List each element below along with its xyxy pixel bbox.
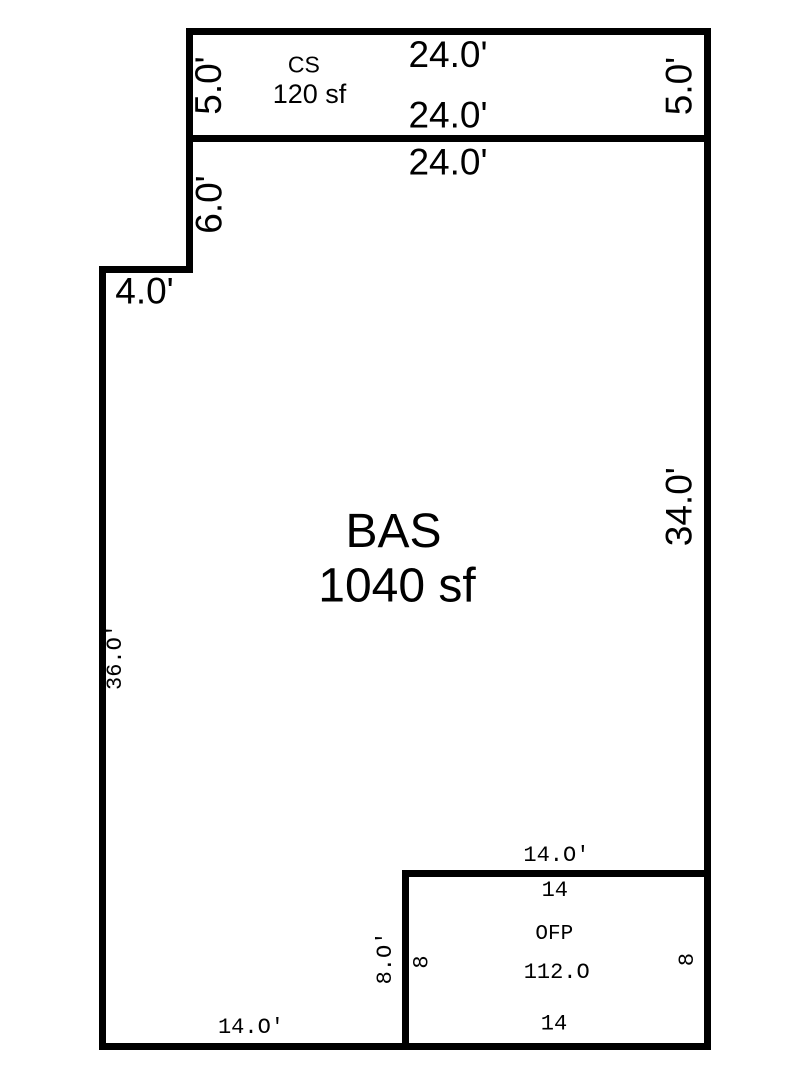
svg-text:14: 14 [541, 1012, 567, 1037]
svg-text:36.O': 36.O' [103, 624, 128, 690]
svg-text:1040 sf: 1040 sf [318, 560, 476, 613]
svg-text:24.0': 24.0' [408, 142, 487, 183]
svg-text:5.0': 5.0' [188, 56, 229, 115]
svg-text:24.0': 24.0' [408, 95, 487, 136]
svg-text:14: 14 [542, 878, 568, 903]
svg-text:14.O': 14.O' [218, 1015, 284, 1040]
svg-text:8: 8 [675, 953, 700, 966]
svg-text:34.0': 34.0' [659, 467, 700, 546]
svg-text:6.0': 6.0' [189, 175, 230, 234]
svg-text:24.0': 24.0' [408, 34, 487, 75]
svg-text:112.O: 112.O [524, 960, 590, 985]
svg-text:120 sf: 120 sf [273, 79, 347, 109]
svg-text:14.O': 14.O' [523, 843, 589, 868]
svg-text:CS: CS [288, 51, 320, 77]
svg-text:5.0': 5.0' [659, 57, 700, 116]
svg-text:8: 8 [410, 955, 435, 968]
svg-text:4.0': 4.0' [115, 271, 174, 312]
svg-text:BAS: BAS [345, 505, 441, 558]
svg-text:OFP: OFP [535, 923, 573, 946]
svg-text:8.O': 8.O' [373, 932, 398, 985]
